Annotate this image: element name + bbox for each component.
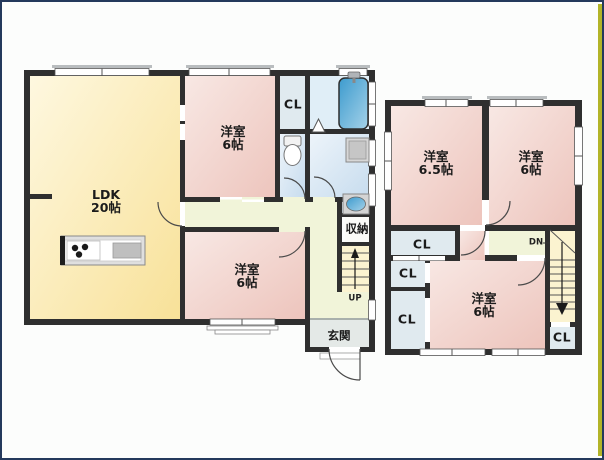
entrance-step-line (310, 318, 370, 320)
label-stairs-down: DN (529, 237, 543, 250)
washing-machine-icon (346, 138, 369, 162)
label-bedroom-right-2f: 洋室 6帖 (518, 150, 543, 176)
floorplan-image: LDK 20帖 洋室 6帖 洋室 6帖 CL 収納 玄関 UP 洋室 6.5帖 … (0, 0, 604, 460)
label-closet2-2f: CL (399, 267, 417, 280)
label-closet4-2f: CL (553, 331, 571, 344)
label-bedroom-top-1f: 洋室 6帖 (220, 125, 245, 151)
label-bedroom-left-2f: 洋室 6.5帖 (419, 150, 454, 176)
label-closet-1f: CL (284, 98, 302, 111)
label-stairs-up: UP (348, 293, 361, 306)
toilet-icon (284, 136, 301, 166)
bathtub-icon (339, 72, 368, 129)
label-entrance: 玄関 (328, 330, 351, 343)
label-bedroom-bottom-1f: 洋室 6帖 (234, 263, 259, 289)
entrance-porch-step (320, 353, 360, 359)
floor1-plan (24, 65, 376, 380)
label-storage: 収納 (346, 223, 369, 236)
label-ldk: LDK 20帖 (91, 188, 121, 214)
kitchen-counter-icon (60, 236, 145, 265)
label-closet3-2f: CL (398, 313, 416, 326)
label-bedroom-bottom-2f: 洋室 6帖 (471, 292, 496, 318)
sink-icon (343, 194, 369, 214)
floorplan-drawing (2, 2, 604, 460)
label-closet1-2f: CL (413, 238, 431, 251)
